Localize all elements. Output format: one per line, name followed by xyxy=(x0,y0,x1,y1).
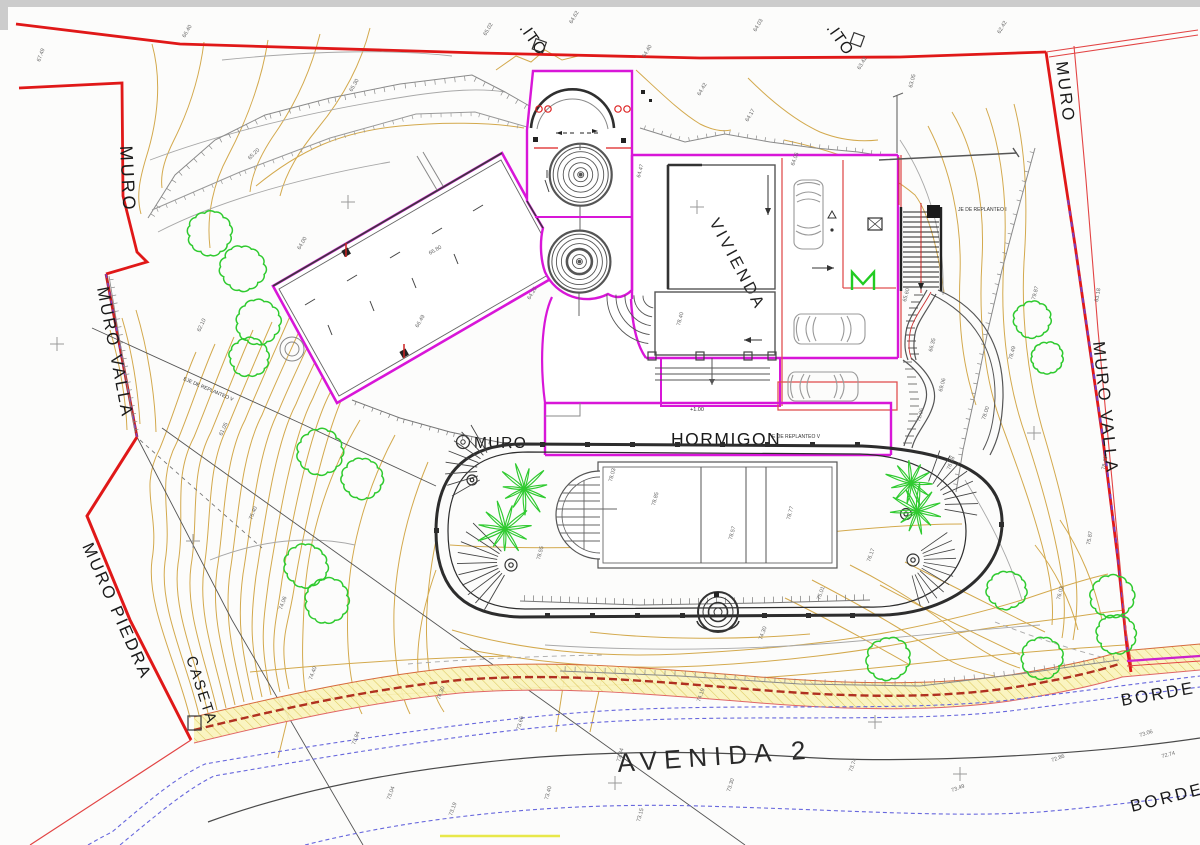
svg-text:MURO: MURO xyxy=(116,145,139,213)
svg-text:+1.00: +1.00 xyxy=(690,407,704,413)
svg-text:JE DE REPLANTEO I: JE DE REPLANTEO I xyxy=(958,207,1007,213)
svg-text:E DE REPLANTEO V: E DE REPLANTEO V xyxy=(772,434,821,440)
